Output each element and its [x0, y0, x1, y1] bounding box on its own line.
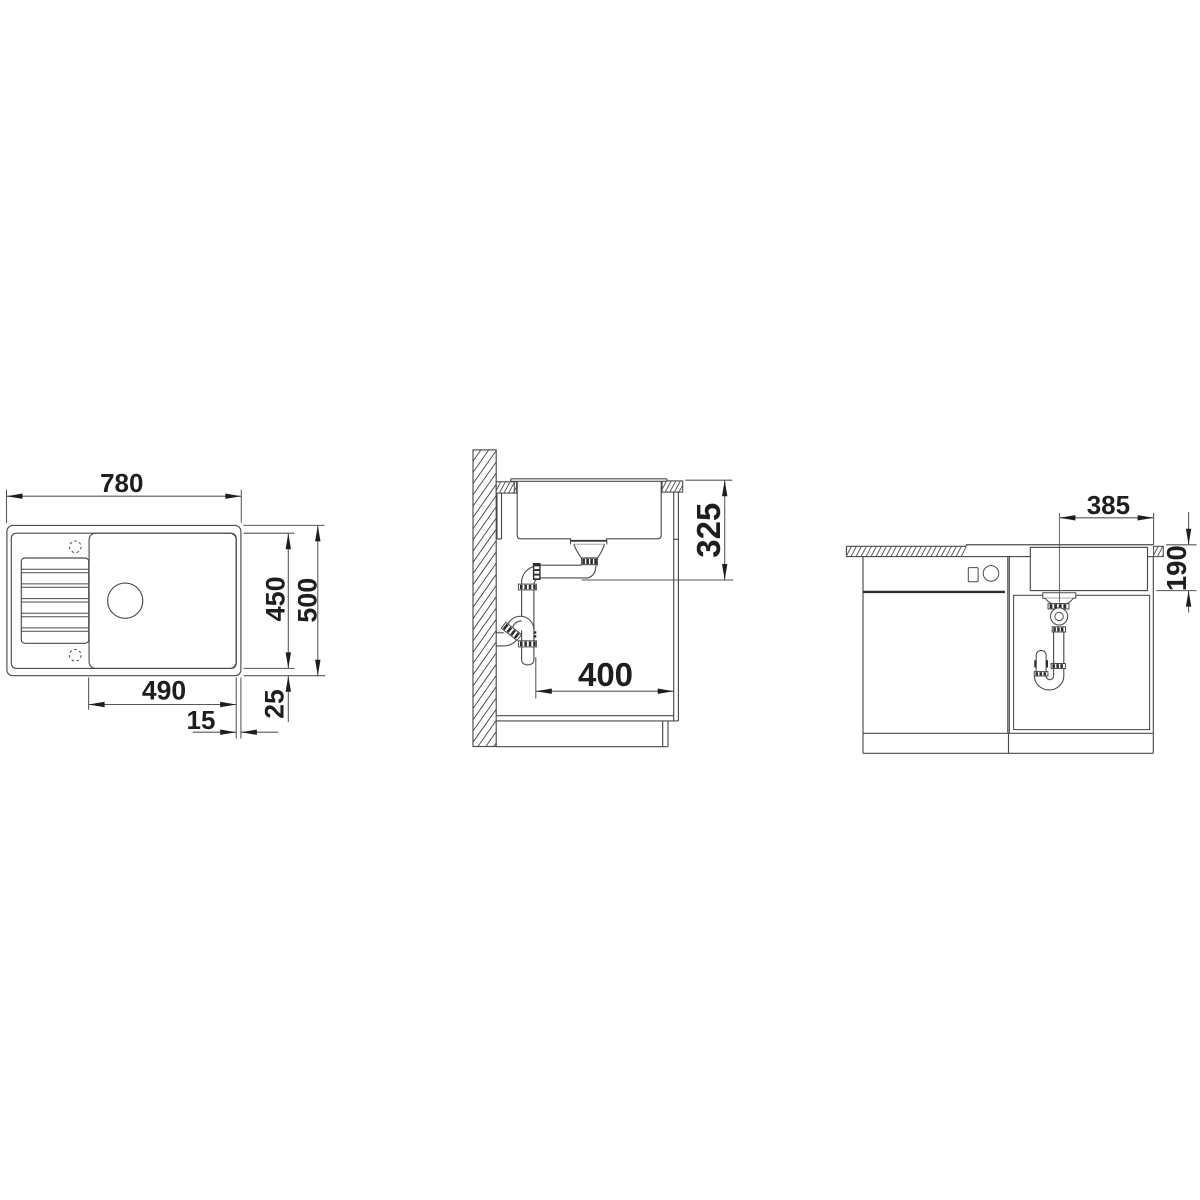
- svg-text:190: 190: [1161, 545, 1192, 591]
- svg-text:325: 325: [690, 503, 727, 558]
- svg-text:400: 400: [578, 656, 633, 693]
- svg-text:25: 25: [260, 689, 290, 718]
- svg-text:450: 450: [260, 576, 290, 621]
- svg-text:15: 15: [187, 705, 216, 735]
- svg-text:500: 500: [292, 578, 322, 623]
- svg-text:385: 385: [1087, 490, 1130, 520]
- svg-text:780: 780: [100, 468, 143, 498]
- svg-text:490: 490: [142, 676, 186, 706]
